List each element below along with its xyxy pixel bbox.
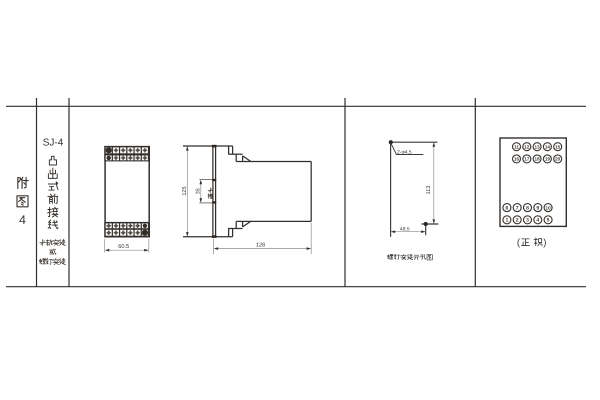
svg-text:2-φ4.5: 2-φ4.5 — [397, 149, 412, 155]
svg-text:14: 14 — [545, 144, 551, 149]
svg-text:4: 4 — [536, 218, 539, 224]
svg-text:): ) — [543, 238, 546, 249]
svg-text:12: 12 — [524, 144, 530, 149]
svg-text:60.5: 60.5 — [118, 244, 129, 250]
svg-text:3: 3 — [526, 218, 529, 224]
svg-text:11: 11 — [514, 144, 519, 149]
svg-text:(: ( — [517, 238, 521, 249]
svg-text:1: 1 — [505, 218, 508, 224]
svg-text:6: 6 — [505, 205, 508, 211]
svg-text:9: 9 — [536, 205, 539, 211]
svg-text:18: 18 — [535, 157, 541, 162]
svg-text:7: 7 — [516, 205, 519, 211]
svg-text:15: 15 — [555, 144, 561, 149]
svg-text:2: 2 — [516, 218, 519, 224]
svg-text:10: 10 — [546, 205, 552, 210]
svg-text:19: 19 — [545, 157, 551, 162]
svg-text:17: 17 — [524, 157, 530, 162]
svg-text:4: 4 — [19, 213, 26, 227]
svg-text:13: 13 — [535, 144, 541, 149]
svg-text:113: 113 — [426, 186, 432, 195]
svg-text:16: 16 — [514, 157, 520, 162]
svg-text:8: 8 — [526, 205, 529, 211]
svg-text:20: 20 — [555, 157, 561, 162]
svg-text:128: 128 — [256, 242, 265, 248]
svg-text:SJ-4: SJ-4 — [43, 138, 64, 149]
svg-text:125: 125 — [182, 186, 188, 195]
svg-text:48.5: 48.5 — [400, 226, 410, 232]
svg-text:35: 35 — [196, 188, 202, 194]
svg-text:5: 5 — [547, 218, 550, 224]
